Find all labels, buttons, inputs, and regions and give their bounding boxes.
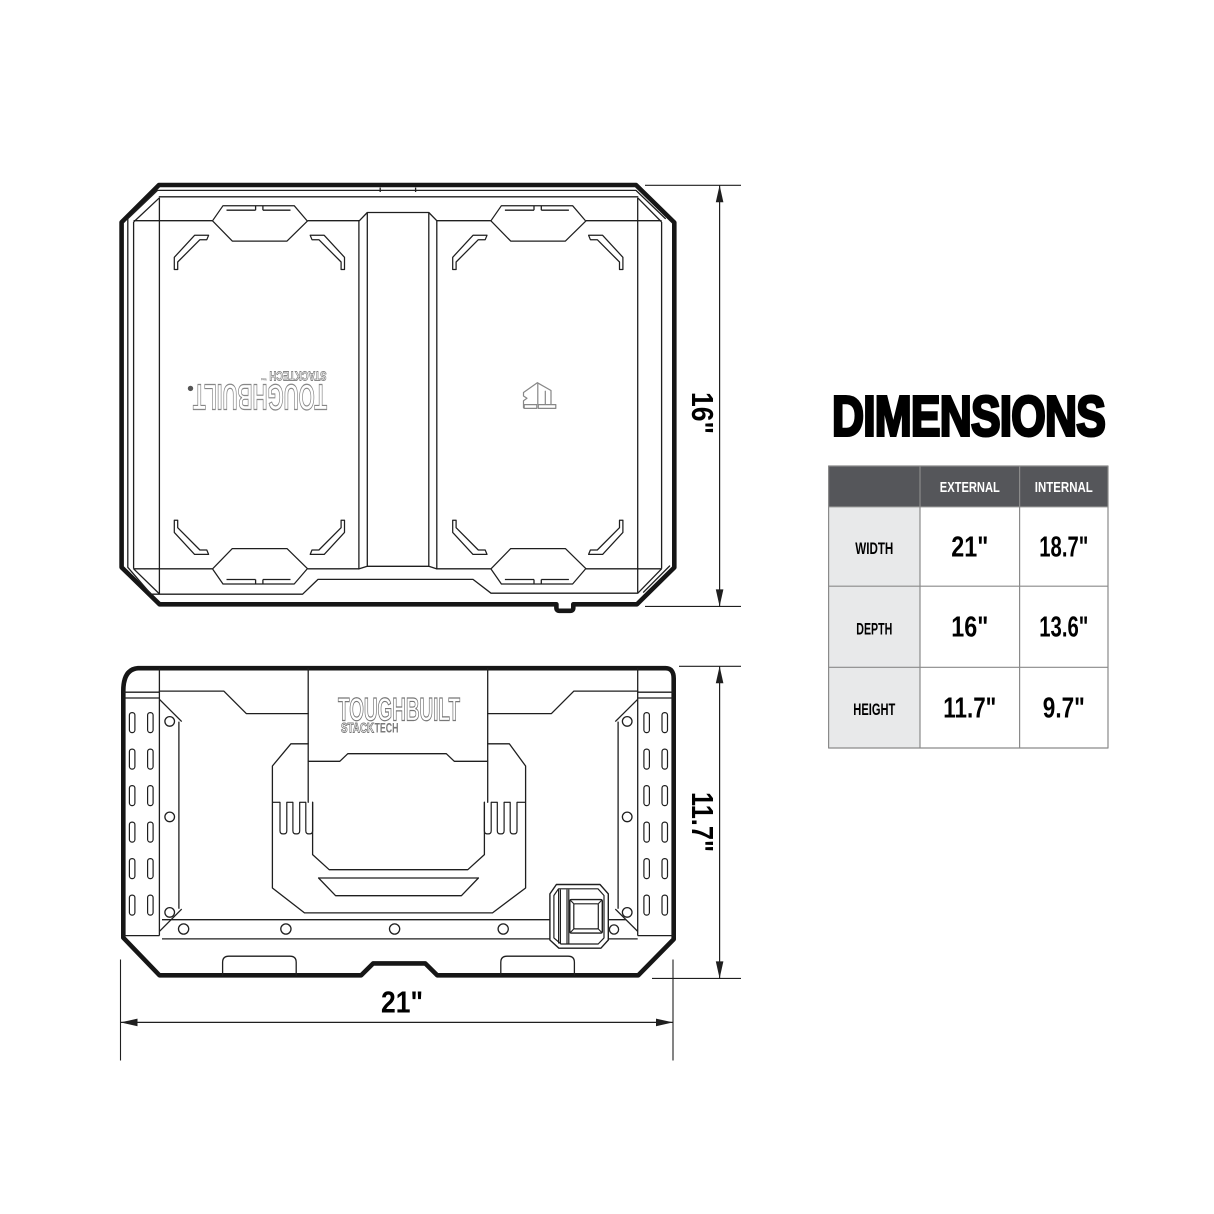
svg-text:11.7": 11.7" bbox=[943, 692, 996, 724]
svg-text:21": 21" bbox=[381, 985, 423, 1020]
svg-text:STACKTECH: STACKTECH bbox=[270, 368, 327, 383]
svg-text:18.7": 18.7" bbox=[1039, 531, 1088, 563]
svg-text:16": 16" bbox=[951, 612, 988, 644]
svg-text:EXTERNAL: EXTERNAL bbox=[940, 479, 1000, 496]
svg-text:16": 16" bbox=[685, 392, 720, 434]
svg-text:11.7": 11.7" bbox=[685, 792, 720, 852]
svg-text:HEIGHT: HEIGHT bbox=[853, 700, 895, 719]
svg-text:13.6": 13.6" bbox=[1039, 612, 1088, 644]
svg-text:INTERNAL: INTERNAL bbox=[1035, 479, 1093, 496]
svg-text:9.7": 9.7" bbox=[1043, 692, 1085, 724]
svg-text:™: ™ bbox=[261, 373, 268, 380]
svg-text:21": 21" bbox=[951, 531, 988, 563]
svg-text:TECH: TECH bbox=[375, 721, 399, 736]
svg-text:STACK: STACK bbox=[341, 721, 374, 736]
svg-text:DEPTH: DEPTH bbox=[856, 619, 892, 638]
svg-text:WIDTH: WIDTH bbox=[855, 539, 893, 558]
svg-text:DIMENSIONS: DIMENSIONS bbox=[832, 385, 1105, 449]
